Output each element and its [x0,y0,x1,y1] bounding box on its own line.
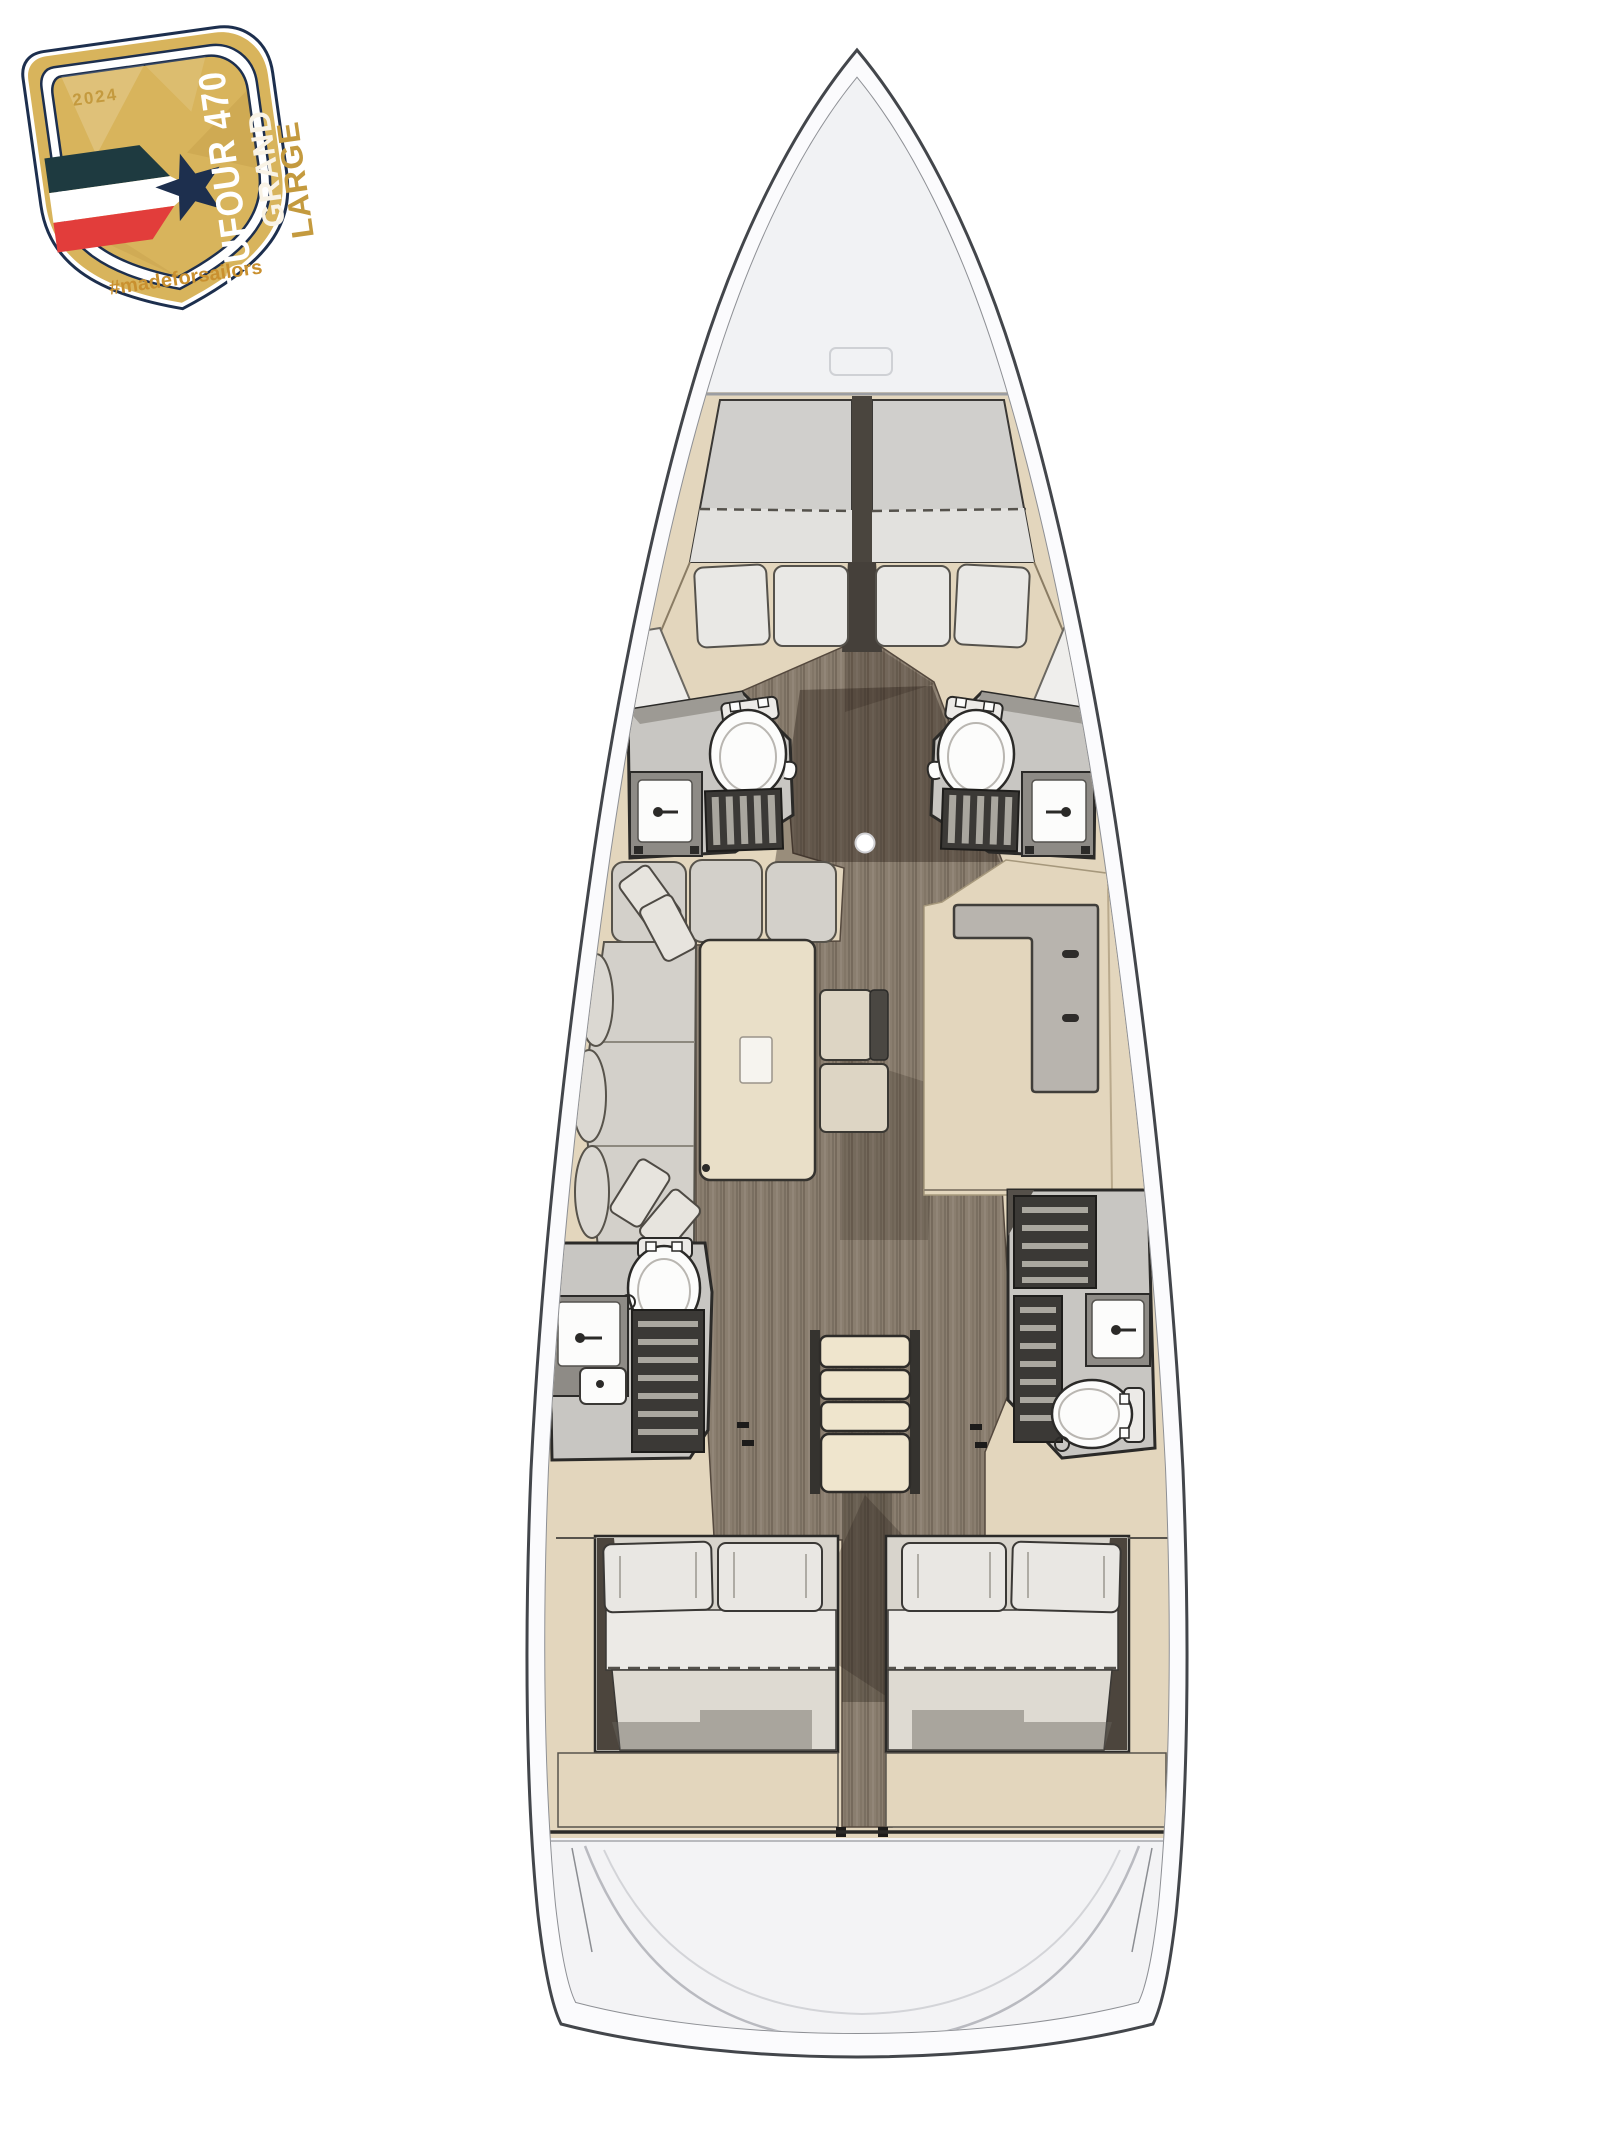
yacht-floorplan-figure: 2024 DUFOUR 470 GRAND LARGE #madeforsail… [0,0,1600,2133]
berth-stbd-mattress-foot [872,508,1034,562]
aft-cabin-starboard [878,1536,1168,1837]
sink-cover-handle [1062,950,1079,958]
stbd-mid-head [1008,1190,1155,1458]
aft-cabin-port [556,1536,846,1837]
shower-grate [632,1310,704,1452]
sofa-bench-cushion [690,860,762,942]
sofa-bench-cushion [766,862,836,942]
mast-base [856,834,875,853]
shower-grate [705,789,783,852]
salon-table [700,940,815,1180]
bed-mattress [606,1610,836,1670]
bed-platform [558,1753,838,1827]
port-mid-head [548,1238,712,1460]
award-badge: 2024 DUFOUR 470 GRAND LARGE #madeforsail… [20,17,328,326]
berth-divider [852,396,872,562]
berth-port-mattress-foot [690,508,852,562]
sink-cabinet [552,1296,628,1404]
sink-cover-handle [1062,1014,1079,1022]
sink-cabinet [630,772,702,856]
sink-cabinet [1086,1294,1150,1366]
toilet-icon [1052,1380,1144,1451]
sole-shadow-strip [842,1492,892,1702]
